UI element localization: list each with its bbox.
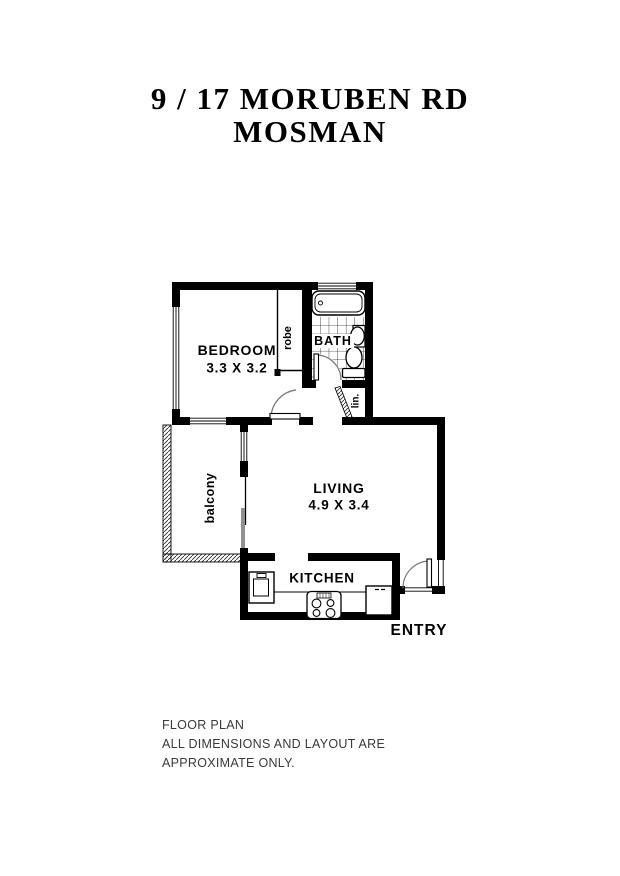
bath-window xyxy=(316,282,358,290)
robe-label: robe xyxy=(282,326,294,350)
kitchen-sink xyxy=(249,572,274,603)
linen-label: lin. xyxy=(351,393,362,409)
bedroom-door xyxy=(270,390,300,419)
entry-door xyxy=(403,559,432,591)
disclaimer-line1: FLOOR PLAN xyxy=(162,716,385,735)
entry-label: ENTRY xyxy=(391,622,448,640)
living-dimensions: 4.9 X 3.4 xyxy=(308,498,369,513)
bathtub xyxy=(312,291,365,315)
sliding-door xyxy=(241,477,246,548)
kitchen-label: KITCHEN xyxy=(287,571,357,586)
living-balcony-window xyxy=(240,430,248,463)
bedroom-label: BEDROOM xyxy=(198,342,277,358)
living-label: LIVING xyxy=(313,480,364,496)
bath-label: BATH xyxy=(312,334,354,348)
disclaimer-line3: APPROXIMATE ONLY. xyxy=(162,754,385,773)
balcony-label: balcony xyxy=(203,473,217,524)
bedroom-balcony-window xyxy=(188,417,228,425)
disclaimer: FLOOR PLAN ALL DIMENSIONS AND LAYOUT ARE… xyxy=(162,716,385,772)
walls xyxy=(172,282,445,620)
floor-plan-page: { "title": { "line1": "9 / 17 MORUBEN RD… xyxy=(0,0,620,876)
stove xyxy=(307,592,341,619)
bedroom-window xyxy=(172,305,180,411)
bedroom-dimensions: 3.3 X 3.2 xyxy=(206,361,267,376)
fridge xyxy=(366,586,392,615)
entry-sidelight xyxy=(437,560,445,586)
disclaimer-line2: ALL DIMENSIONS AND LAYOUT ARE xyxy=(162,735,385,754)
